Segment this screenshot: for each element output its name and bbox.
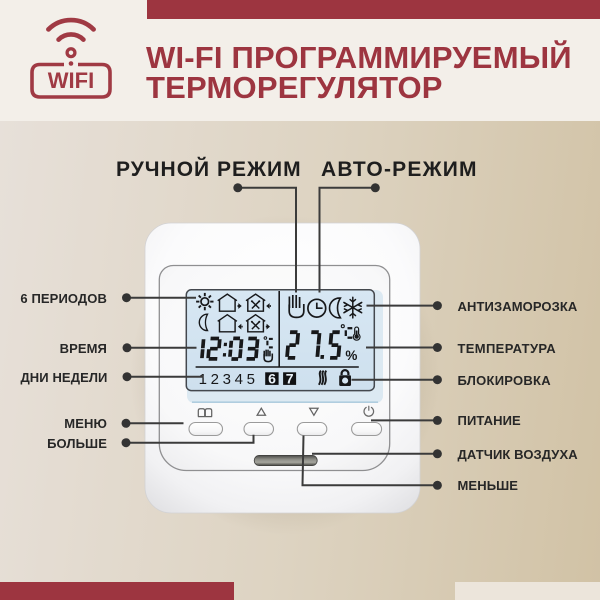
svg-text:%: %	[345, 348, 357, 363]
svg-text:6: 6	[268, 371, 276, 387]
svg-text:7: 7	[286, 371, 294, 387]
svg-text:12345: 12345	[199, 371, 259, 388]
